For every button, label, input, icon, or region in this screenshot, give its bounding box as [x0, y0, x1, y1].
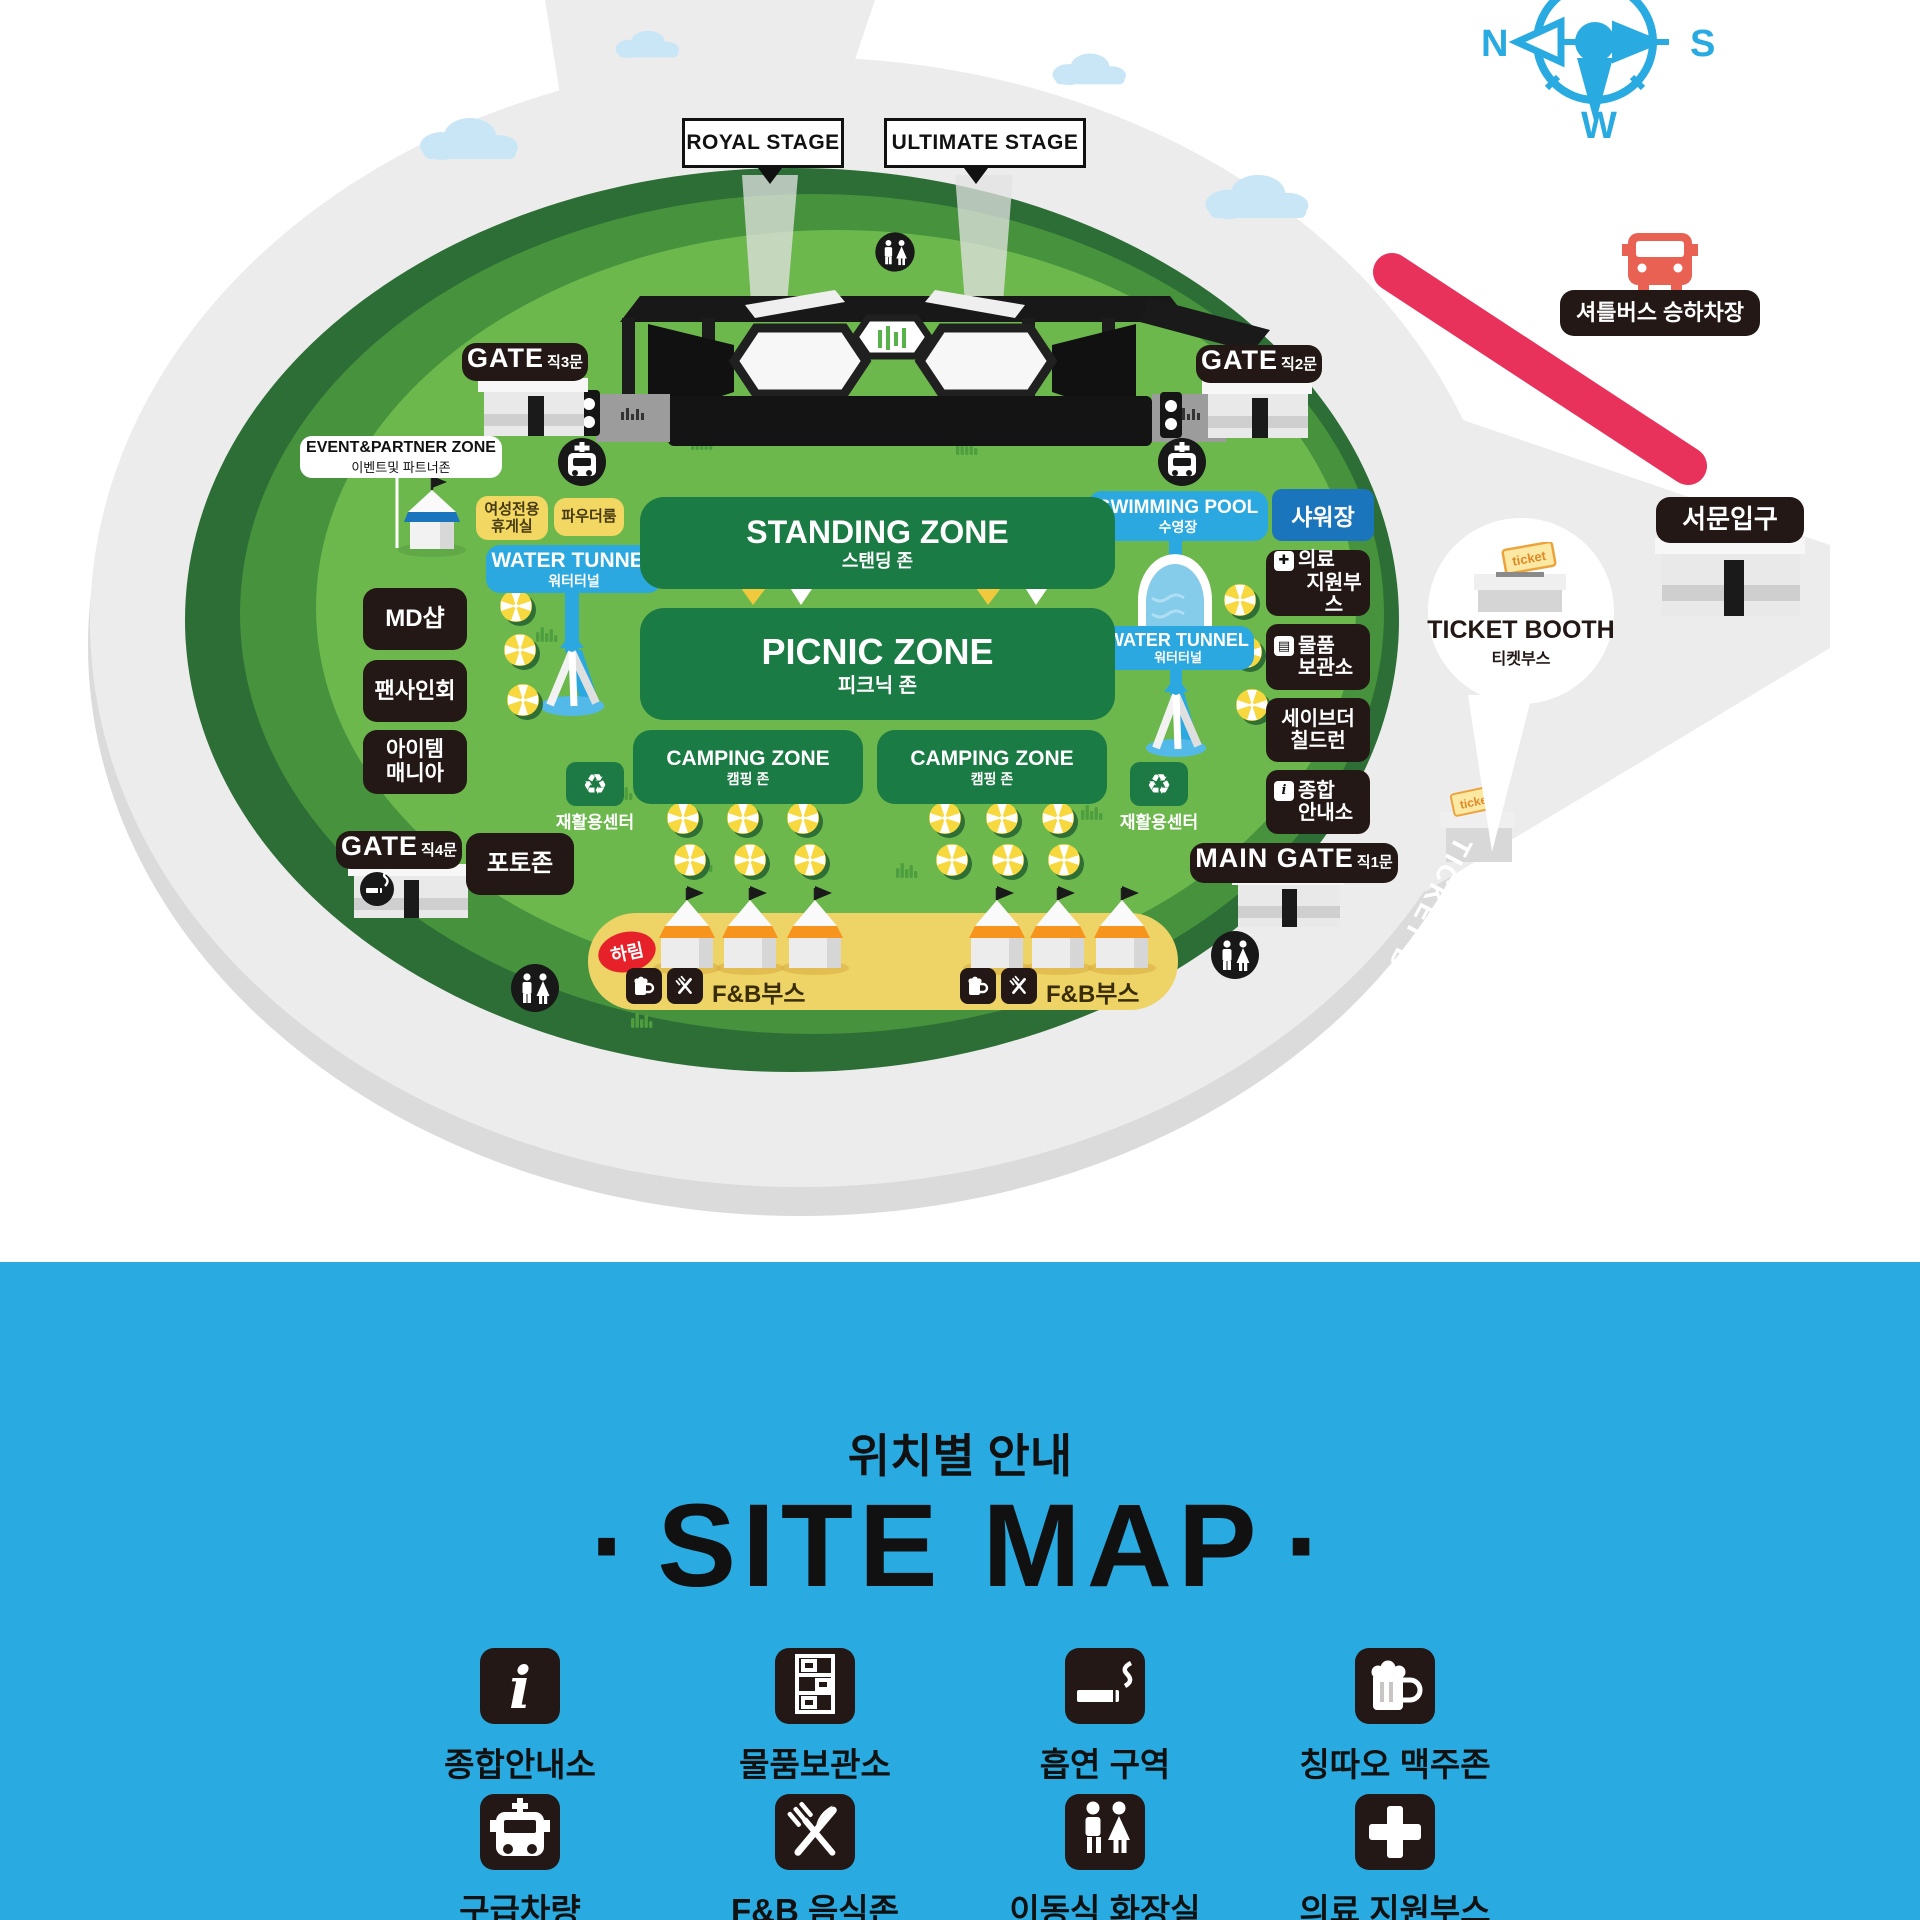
food-icon [1001, 968, 1037, 1004]
food-icon [775, 1794, 855, 1870]
fnb-booth-label: F&B부스 [712, 974, 805, 1009]
compass-icon: N S W [1481, 0, 1715, 147]
site-map-poster: ticket N S W [0, 0, 1920, 1920]
beer-icon [1355, 1648, 1435, 1724]
swimming-pool-label: SWIMMING POOL 수영장 [1088, 491, 1268, 541]
legend-item-food: F&B 음식존 [685, 1794, 945, 1920]
main-gate-label: MAIN GATE직1문 [1190, 843, 1398, 883]
recycle-icon: ♻ [1130, 762, 1188, 806]
food-icon [667, 968, 703, 1004]
save-the-children-label: 세이브더 칠드런 [1266, 698, 1370, 762]
shower-label: 샤워장 [1272, 489, 1374, 541]
west-entrance-label: 서문입구 [1656, 497, 1804, 543]
powder-room-label: 파우더룸 [554, 498, 624, 536]
legend-item-smoking: 흡연 구역 [975, 1648, 1235, 1786]
camping-zone-panel-right: CAMPING ZONE 캠핑 존 [877, 730, 1107, 804]
ticket-booth-callout: ticket TICKET BOOTH 티켓부스 [1428, 518, 1614, 704]
ambulance-icon [480, 1794, 560, 1870]
ultimate-stage-screen [920, 328, 1052, 394]
water-tunnel-left-label: WATER TUNNEL 워터터널 [486, 545, 662, 593]
shuttle-bus-icon [1622, 233, 1698, 292]
recycle-icon: ♻ [566, 762, 624, 806]
medical-booth-label: ✚ 의료 지원부스 [1266, 550, 1370, 616]
compass-s-label: S [1690, 23, 1715, 65]
ultimate-stage-label: ULTIMATE STAGE [884, 118, 1086, 168]
compass-w-label: W [1581, 105, 1617, 147]
ticket-booth-title: TICKET BOOTH [1427, 616, 1615, 645]
gate3-building [478, 378, 588, 436]
picnic-zone-panel: PICNIC ZONE 피크닉 존 [640, 608, 1115, 720]
medical-cross-icon: ✚ [1274, 551, 1294, 571]
storage-label: ▤ 물품 보관소 [1266, 624, 1370, 690]
center-screen [855, 318, 929, 356]
ambulance-icon [558, 438, 606, 486]
speaker-pole-right [1160, 392, 1182, 438]
page-title: ·SITE MAP· [0, 1478, 1920, 1614]
gate2-building [1202, 380, 1312, 438]
smoking-icon [360, 872, 394, 906]
gate3-label: GATE직3문 [462, 343, 588, 381]
shuttle-bus-label: 셔틀버스 승하차장 [1560, 290, 1760, 336]
beer-icon [626, 968, 662, 1004]
royal-stage-screen [734, 328, 866, 394]
locker-icon [775, 1648, 855, 1724]
beer-icon [960, 968, 996, 1004]
legend-item-beer: 칭따오 맥주존 [1265, 1648, 1525, 1786]
gate2-label: GATE직2문 [1196, 345, 1322, 383]
legend-item-storage: 물품보관소 [685, 1648, 945, 1786]
legend-item-ambulance: 구급차량 [390, 1794, 650, 1920]
west-entrance-building [1655, 538, 1805, 616]
item-mania-label: 아이템 매니아 [363, 730, 467, 794]
smoking-icon [1065, 1648, 1145, 1724]
ticket-booth-graphic: ticket [1466, 542, 1576, 614]
restroom-icon [1211, 931, 1259, 979]
restroom-icon [511, 964, 559, 1012]
recycle-center-label: 재활용센터 [1099, 808, 1219, 833]
photo-zone-label: 포토존 [466, 833, 574, 895]
legend-item-restroom: 이동식 화장실 [975, 1794, 1235, 1920]
info-center-label: i 종합 안내소 [1266, 770, 1370, 834]
restroom-icon [875, 232, 914, 271]
page-subtitle: 위치별 안내 [0, 1420, 1920, 1486]
restroom-icon [1065, 1794, 1145, 1870]
compass-n-label: N [1481, 23, 1508, 65]
camping-zone-panel-left: CAMPING ZONE 캠핑 존 [633, 730, 863, 804]
ticket-booth-subtitle: 티켓부스 [1492, 645, 1551, 669]
fnb-booth-label: F&B부스 [1046, 974, 1139, 1009]
svg-text:i: i [509, 1654, 531, 1722]
fan-sign-label: 팬사인회 [363, 660, 467, 722]
locker-icon: ▤ [1274, 636, 1294, 656]
recycle-center-label: 재활용센터 [535, 808, 655, 833]
standing-zone-panel: STANDING ZONE 스탠딩 존 [640, 497, 1115, 589]
medical-cross-icon [1355, 1794, 1435, 1870]
water-tunnel-right-label: WATER TUNNEL 워터터널 [1102, 626, 1254, 670]
legend-item-medical: 의료 지원부스 [1265, 1794, 1525, 1920]
info-icon: i [1274, 781, 1294, 801]
stage-front-bar [668, 396, 1152, 446]
legend-item-info: i 종합안내소 [390, 1648, 650, 1786]
ambulance-icon [1158, 438, 1206, 486]
gate4-label: GATE직4문 [336, 831, 462, 869]
royal-stage-label: ROYAL STAGE [682, 118, 844, 168]
md-shop-label: MD샵 [363, 588, 467, 650]
event-partner-zone-label: EVENT&PARTNER ZONE 이벤트및 파트너존 [300, 436, 502, 478]
info-icon: i [480, 1648, 560, 1724]
female-rest-label: 여성전용 휴게실 [476, 496, 548, 540]
